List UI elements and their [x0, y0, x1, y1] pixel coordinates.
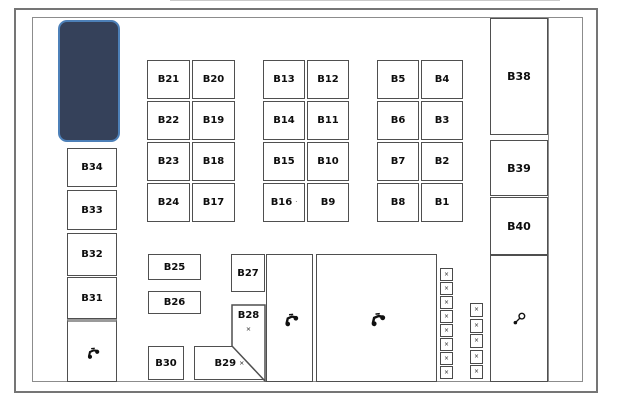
x-mark: × — [474, 354, 479, 360]
mini-locker-column-1: × × × × × × × × — [440, 268, 453, 380]
stall-b12[interactable]: B12 — [307, 60, 349, 99]
stall-b9[interactable]: B9 — [307, 183, 349, 222]
x-mark: × — [444, 300, 449, 306]
mini-locker-column-2: × × × × × — [470, 303, 483, 380]
stall-grid-center: B13 B12 B14 B11 B15 B10 B16 · B9 — [263, 60, 349, 222]
stall-label: B7 — [391, 156, 406, 167]
stall-grid-east: B5 B4 B6 B3 B7 B2 B8 B1 — [377, 60, 463, 222]
mini-locker: × — [470, 334, 483, 348]
stall-label: B31 — [81, 293, 103, 304]
stall-b23[interactable]: B23 — [147, 142, 190, 181]
stall-label: B24 — [158, 197, 180, 208]
stall-b11[interactable]: B11 — [307, 101, 349, 140]
stall-b6[interactable]: B6 — [377, 101, 419, 140]
parking-stall-map: B34 B33 B32 B31 B21 B20 B22 B19 B23 B18 … — [0, 0, 620, 404]
x-mark: × — [444, 370, 449, 376]
stall-b27[interactable]: B27 — [231, 254, 265, 292]
stall-b21[interactable]: B21 — [147, 60, 190, 99]
stall-b2[interactable]: B2 — [421, 142, 463, 181]
stall-label: B13 — [273, 74, 295, 85]
right-corridor-wall — [548, 17, 549, 382]
stall-label: B15 — [273, 156, 295, 167]
mini-locker: × — [470, 365, 483, 379]
stall-label: B10 — [317, 156, 339, 167]
stall-b16[interactable]: B16 · — [263, 183, 305, 222]
stall-label: B38 — [507, 70, 531, 83]
stall-b34[interactable]: B34 — [67, 148, 117, 187]
stall-mark: · — [295, 199, 297, 206]
stall-label: B27 — [237, 268, 259, 279]
stall-label: B21 — [158, 74, 180, 85]
stall-label: B33 — [81, 205, 103, 216]
stall-label: B11 — [317, 115, 339, 126]
stall-label: B32 — [81, 249, 103, 260]
stall-b1[interactable]: B1 — [421, 183, 463, 222]
stall-b5[interactable]: B5 — [377, 60, 419, 99]
stall-label: B16 — [271, 197, 293, 208]
stall-b25[interactable]: B25 — [148, 254, 201, 280]
x-mark: × — [444, 342, 449, 348]
motorcycle-icon — [278, 308, 300, 329]
key-icon — [512, 311, 527, 326]
highlight-block[interactable] — [58, 20, 120, 142]
stall-label: B39 — [507, 162, 531, 175]
stall-label: B23 — [158, 156, 180, 167]
stall-label: B8 — [391, 197, 406, 208]
stall-b10[interactable]: B10 — [307, 142, 349, 181]
motorcycle-icon — [365, 307, 389, 329]
stall-label: B17 — [203, 197, 225, 208]
stall-label: B22 — [158, 115, 180, 126]
stall-label: B1 — [435, 197, 450, 208]
top-edge-line — [170, 0, 560, 1]
stall-b8[interactable]: B8 — [377, 183, 419, 222]
left-vehicle-bay — [67, 319, 117, 382]
mini-locker: × — [440, 268, 453, 281]
x-mark: × — [444, 314, 449, 320]
motorcycle-icon — [82, 342, 102, 361]
x-mark: × — [474, 338, 479, 344]
stall-label: B18 — [203, 156, 225, 167]
stall-mark: × — [231, 326, 266, 333]
mini-locker: × — [470, 319, 483, 333]
stall-label: B25 — [164, 262, 186, 273]
right-vehicle-bay — [490, 255, 548, 382]
stall-b22[interactable]: B22 — [147, 101, 190, 140]
mini-locker: × — [440, 282, 453, 295]
stall-label: B5 — [391, 74, 406, 85]
stall-b13[interactable]: B13 — [263, 60, 305, 99]
mini-locker: × — [440, 338, 453, 351]
stall-grid-west: B21 B20 B22 B19 B23 B18 B24 B17 — [147, 60, 235, 222]
stall-b19[interactable]: B19 — [192, 101, 235, 140]
stall-label: B40 — [507, 220, 531, 233]
stall-label: B19 — [203, 115, 225, 126]
mini-locker: × — [470, 350, 483, 364]
center-corridor-bay — [266, 254, 313, 382]
stall-label: B14 — [273, 115, 295, 126]
stall-label: B2 — [435, 156, 450, 167]
stall-b14[interactable]: B14 — [263, 101, 305, 140]
stall-b24[interactable]: B24 — [147, 183, 190, 222]
x-mark: × — [474, 323, 479, 329]
stall-label: B12 — [317, 74, 339, 85]
stall-b38[interactable]: B38 — [490, 18, 548, 135]
stall-label: B6 — [391, 115, 406, 126]
stall-b31[interactable]: B31 — [67, 277, 117, 319]
large-vehicle-bay — [316, 254, 437, 382]
stall-label: B30 — [155, 358, 177, 369]
x-mark: × — [474, 369, 479, 375]
stall-label: B9 — [321, 197, 336, 208]
stall-label: B3 — [435, 115, 450, 126]
stall-b18[interactable]: B18 — [192, 142, 235, 181]
stall-b7[interactable]: B7 — [377, 142, 419, 181]
mini-locker: × — [440, 352, 453, 365]
stall-b28[interactable]: B28 × — [231, 304, 266, 382]
x-mark: × — [444, 356, 449, 362]
stall-b26[interactable]: B26 — [148, 291, 201, 314]
x-mark: × — [474, 307, 479, 313]
stall-b30[interactable]: B30 — [148, 346, 184, 380]
mini-locker: × — [440, 324, 453, 337]
stall-label: B28 — [231, 310, 266, 321]
stall-label: B20 — [203, 74, 225, 85]
x-mark: × — [444, 328, 449, 334]
stall-b39[interactable]: B39 — [490, 140, 548, 196]
stall-b3[interactable]: B3 — [421, 101, 463, 140]
mini-locker: × — [470, 303, 483, 317]
stall-label: B34 — [81, 162, 103, 173]
stall-label: B26 — [164, 297, 186, 308]
stall-b17[interactable]: B17 — [192, 183, 235, 222]
stall-b20[interactable]: B20 — [192, 60, 235, 99]
stall-b40[interactable]: B40 — [490, 197, 548, 255]
x-mark: × — [444, 272, 449, 278]
stall-b33[interactable]: B33 — [67, 190, 117, 230]
stall-label: B4 — [435, 74, 450, 85]
mini-locker: × — [440, 366, 453, 379]
x-mark: × — [444, 286, 449, 292]
stall-b15[interactable]: B15 — [263, 142, 305, 181]
stall-b32[interactable]: B32 — [67, 233, 117, 276]
stall-b4[interactable]: B4 — [421, 60, 463, 99]
mini-locker: × — [440, 296, 453, 309]
mini-locker: × — [440, 310, 453, 323]
